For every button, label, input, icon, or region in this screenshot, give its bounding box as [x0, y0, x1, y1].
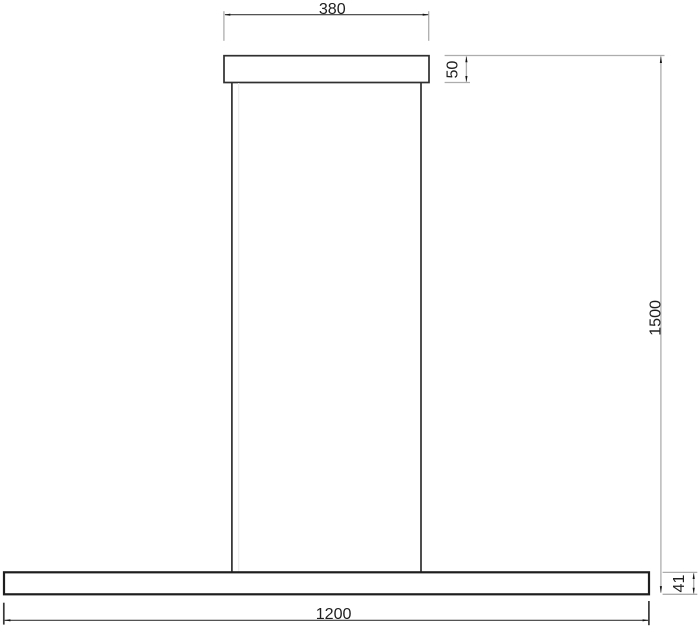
- svg-text:380: 380: [319, 0, 346, 18]
- svg-text:1200: 1200: [316, 605, 352, 623]
- svg-text:1500: 1500: [646, 300, 664, 336]
- svg-text:50: 50: [444, 61, 462, 79]
- svg-text:41: 41: [670, 575, 688, 593]
